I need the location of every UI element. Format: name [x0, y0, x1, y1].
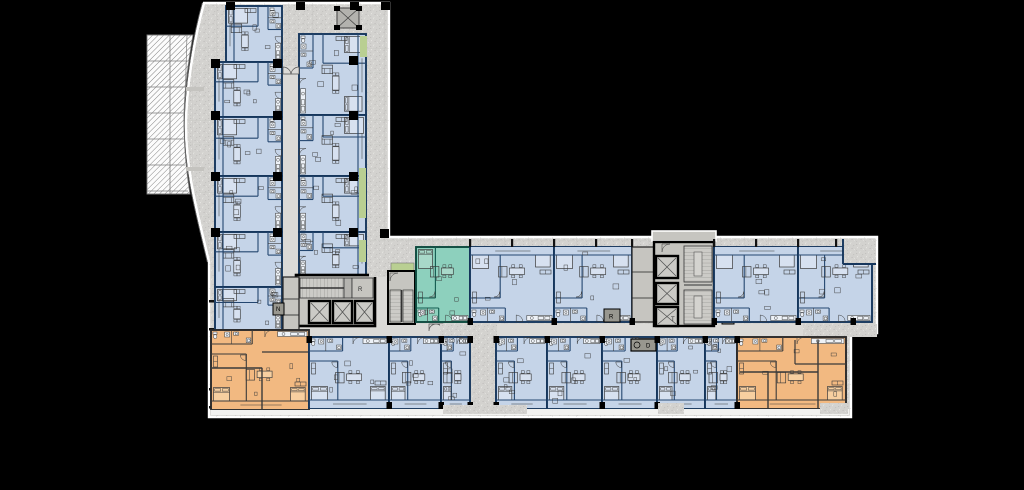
- svg-text:D: D: [646, 344, 651, 350]
- svg-text:R: R: [609, 315, 614, 321]
- svg-text:R: R: [358, 287, 363, 293]
- svg-text:T: T: [671, 317, 675, 323]
- svg-text:N: N: [276, 307, 280, 313]
